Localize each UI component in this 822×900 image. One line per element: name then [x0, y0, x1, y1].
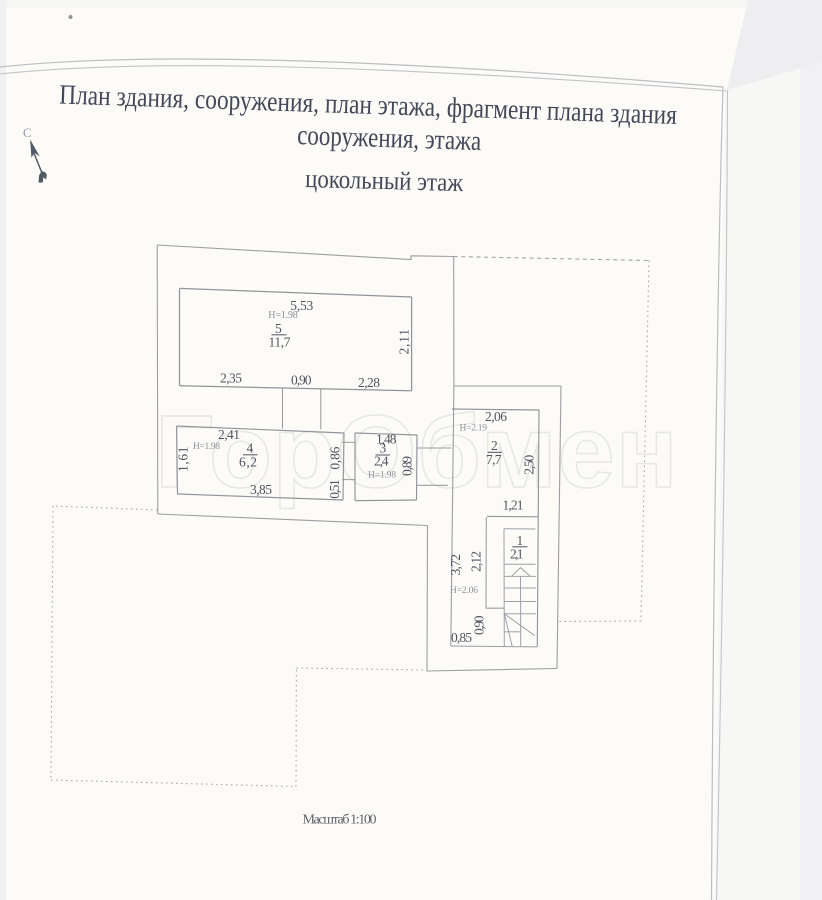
svg-text:Масштаб 1:100: Масштаб 1:100 — [303, 813, 377, 828]
svg-text:H=2.19: H=2.19 — [460, 424, 488, 434]
svg-text:2,11: 2,11 — [397, 329, 412, 355]
svg-text:2,28: 2,28 — [358, 375, 380, 390]
svg-text:H=1.98: H=1.98 — [268, 310, 298, 321]
svg-text:H=2.06: H=2.06 — [450, 586, 478, 596]
svg-text:2,50: 2,50 — [522, 455, 537, 475]
svg-text:1,61: 1,61 — [176, 447, 191, 473]
svg-text:H=1.98: H=1.98 — [368, 471, 396, 481]
svg-text:2,4: 2,4 — [374, 454, 389, 469]
svg-text:4: 4 — [247, 441, 254, 456]
svg-text:0,86: 0,86 — [328, 446, 343, 469]
svg-text:сооружения, этажа: сооружения, этажа — [297, 120, 482, 157]
svg-text:0,89: 0,89 — [400, 456, 415, 476]
svg-text:1,21: 1,21 — [503, 498, 524, 513]
svg-text:0,51: 0,51 — [327, 479, 342, 499]
svg-text:0,90: 0,90 — [472, 615, 487, 635]
svg-text:7,7: 7,7 — [486, 452, 502, 467]
svg-text:3,85: 3,85 — [250, 482, 272, 497]
svg-text:2,12: 2,12 — [469, 551, 484, 572]
svg-text:H=1.98: H=1.98 — [193, 442, 220, 452]
svg-text:6,2: 6,2 — [239, 455, 257, 470]
svg-text:2,41: 2,41 — [218, 427, 240, 442]
svg-text:0,85: 0,85 — [451, 630, 472, 645]
svg-text:2,1: 2,1 — [510, 546, 524, 561]
svg-text:C: C — [23, 126, 31, 140]
svg-text:3,72: 3,72 — [448, 554, 463, 576]
svg-text:2,06: 2,06 — [485, 409, 507, 424]
svg-text:0,90: 0,90 — [291, 373, 312, 388]
svg-text:11,7: 11,7 — [269, 335, 291, 350]
svg-text:2: 2 — [491, 438, 498, 453]
svg-text:цокольный этаж: цокольный этаж — [305, 164, 465, 197]
svg-text:2,35: 2,35 — [220, 371, 242, 386]
